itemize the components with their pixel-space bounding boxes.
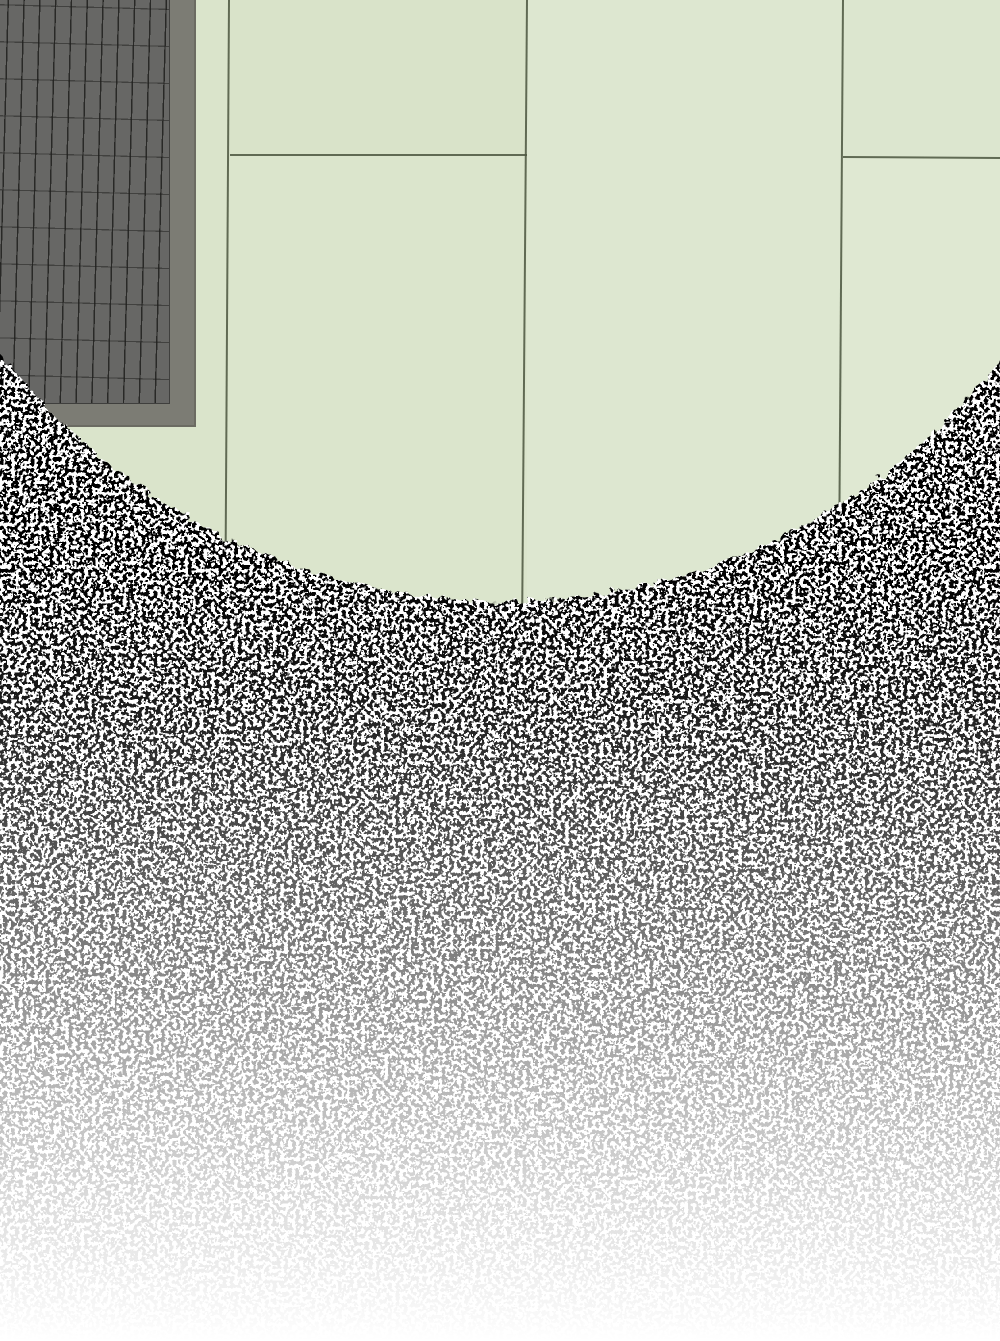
speckle-masked-group xyxy=(0,0,1000,1341)
speckle-field xyxy=(0,0,1000,1341)
scene xyxy=(0,0,1000,1341)
speckle-bottom-fade xyxy=(0,0,1000,1341)
